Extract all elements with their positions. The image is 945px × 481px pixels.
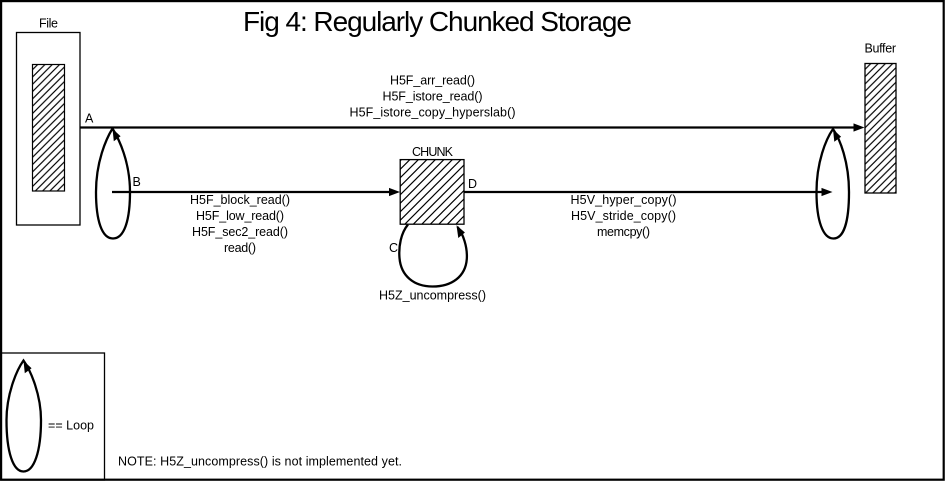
svg-text:Fig 4: Regularly Chunked Stor: Fig 4: Regularly Chunked Storage [243, 6, 632, 37]
svg-text:File: File [39, 17, 58, 31]
svg-text:CHUNK: CHUNK [412, 145, 454, 159]
svg-text:NOTE: H5Z_uncompress() is not: NOTE: H5Z_uncompress() is not implemente… [118, 455, 402, 469]
svg-text:H5Z_uncompress(): H5Z_uncompress() [379, 289, 486, 303]
svg-text:H5F_sec2_read(): H5F_sec2_read() [192, 225, 288, 239]
svg-text:B: B [133, 175, 141, 189]
svg-text:H5F_low_read(): H5F_low_read() [196, 209, 284, 223]
svg-text:== Loop: == Loop [48, 419, 94, 433]
svg-text:H5F_istore_copy_hyperslab(): H5F_istore_copy_hyperslab() [350, 106, 516, 120]
svg-text:H5V_hyper_copy(): H5V_hyper_copy() [571, 193, 677, 207]
svg-text:memcpy(): memcpy() [597, 225, 650, 239]
svg-text:H5F_block_read(): H5F_block_read() [190, 193, 290, 207]
svg-text:D: D [468, 177, 477, 191]
svg-text:H5F_istore_read(): H5F_istore_read() [383, 90, 483, 104]
svg-text:H5F_arr_read(): H5F_arr_read() [390, 74, 475, 88]
svg-text:Buffer: Buffer [865, 42, 897, 56]
svg-text:A: A [85, 112, 94, 126]
svg-text:H5V_stride_copy(): H5V_stride_copy() [571, 209, 676, 223]
svg-text:C: C [389, 241, 398, 255]
svg-text:read(): read() [224, 241, 256, 255]
